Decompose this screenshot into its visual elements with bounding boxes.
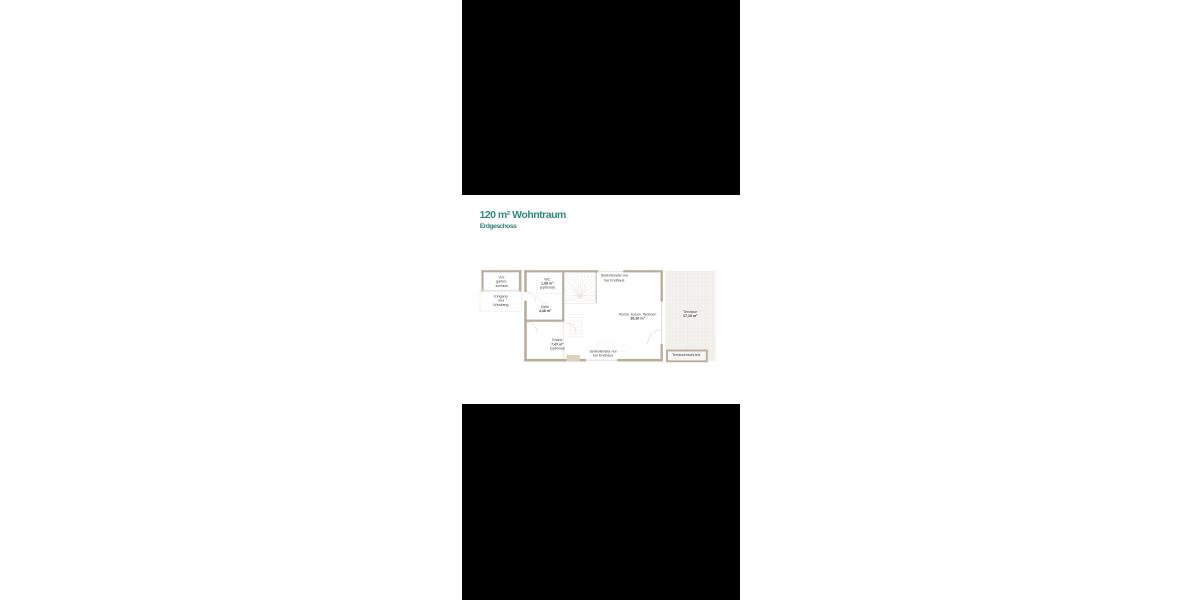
svg-text:Eingang: Eingang — [494, 295, 507, 299]
svg-text:Windfang: Windfang — [493, 303, 508, 307]
svg-text:Küche, Essen, Wohnen: Küche, Essen, Wohnen — [619, 312, 657, 316]
svg-text:38,36 m²: 38,36 m² — [630, 317, 645, 321]
svg-text:Vor-: Vor- — [499, 276, 506, 280]
svg-text:7,47 m²: 7,47 m² — [551, 342, 564, 346]
svg-text:(optional): (optional) — [540, 286, 555, 290]
svg-text:Terrassenschrank: Terrassenschrank — [672, 353, 701, 357]
svg-text:Küche: Küche — [552, 338, 562, 342]
svg-text:Terrasse: Terrasse — [683, 310, 697, 314]
svg-text:4,38 m²: 4,38 m² — [539, 309, 552, 313]
svg-text:17,10 m²: 17,10 m² — [683, 314, 698, 318]
svg-text:1,98 m²: 1,98 m² — [541, 282, 554, 286]
svg-text:Diele: Diele — [541, 305, 549, 309]
svg-text:Seitenfenster nur: Seitenfenster nur — [601, 274, 629, 278]
svg-text:bei Endhaus: bei Endhaus — [593, 354, 613, 358]
svg-text:WC: WC — [544, 278, 550, 282]
svg-text:(optional): (optional) — [550, 347, 565, 351]
svg-text:bei Endhaus: bei Endhaus — [604, 279, 624, 283]
svg-text:Seitenfenster nur: Seitenfenster nur — [590, 350, 618, 354]
svg-text:schrank: schrank — [496, 284, 509, 288]
svg-text:garten-: garten- — [496, 280, 508, 284]
svg-text:und: und — [498, 299, 504, 303]
